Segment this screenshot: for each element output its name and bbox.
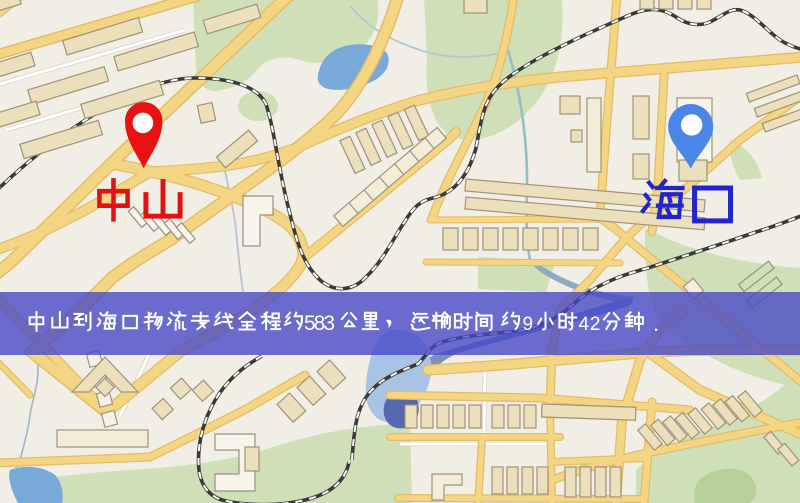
svg-text:42: 42 (579, 314, 601, 335)
svg-text:583: 583 (304, 312, 335, 335)
svg-text:9: 9 (523, 314, 534, 335)
svg-text:.: . (653, 311, 659, 336)
